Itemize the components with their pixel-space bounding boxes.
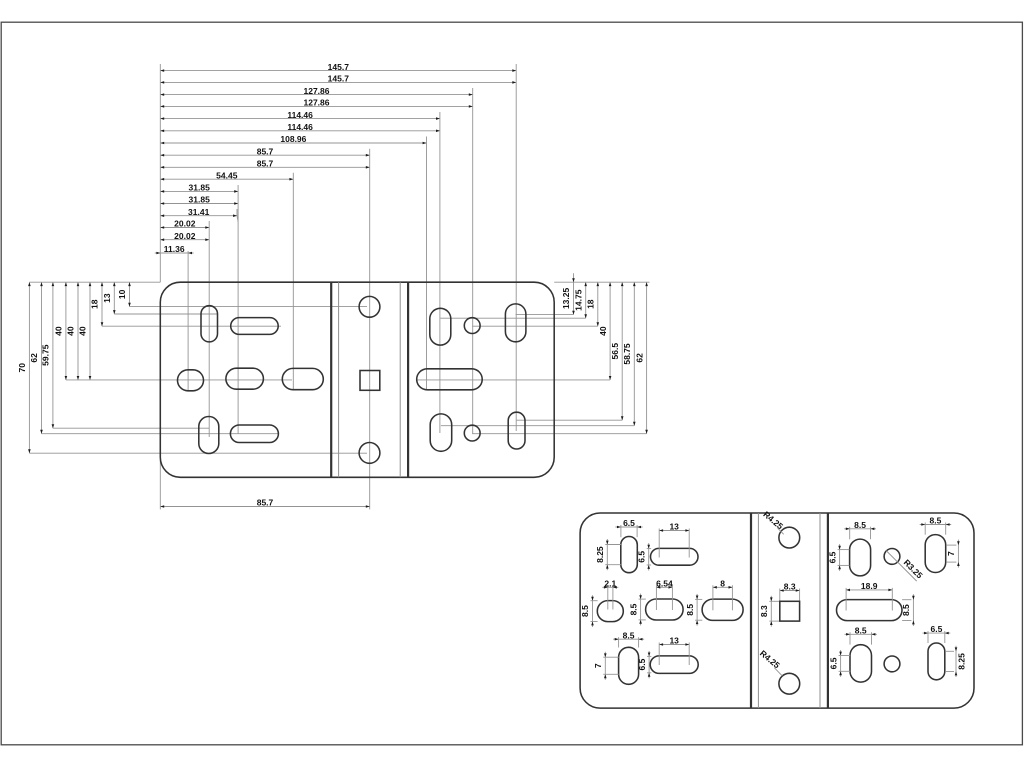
svg-text:8.5: 8.5: [685, 604, 695, 616]
svg-text:6.5: 6.5: [636, 551, 646, 563]
svg-text:70: 70: [17, 363, 27, 373]
svg-text:10: 10: [117, 289, 127, 299]
svg-text:85.7: 85.7: [257, 159, 274, 169]
svg-text:85.7: 85.7: [257, 146, 274, 156]
svg-text:6.5: 6.5: [930, 624, 942, 634]
svg-text:8.25: 8.25: [957, 653, 967, 670]
svg-text:145.7: 145.7: [328, 62, 350, 72]
svg-text:13: 13: [669, 636, 679, 646]
svg-text:58.75: 58.75: [622, 343, 632, 365]
svg-text:114.46: 114.46: [287, 110, 313, 120]
svg-text:13: 13: [669, 522, 679, 532]
svg-text:14.75: 14.75: [573, 289, 583, 311]
svg-text:6.54: 6.54: [656, 578, 673, 588]
svg-text:8.5: 8.5: [929, 516, 941, 526]
svg-text:31.85: 31.85: [189, 183, 211, 193]
svg-text:85.7: 85.7: [257, 498, 274, 508]
svg-text:8.5: 8.5: [628, 603, 638, 615]
svg-text:8.5: 8.5: [580, 605, 590, 617]
svg-text:11.36: 11.36: [164, 244, 185, 254]
svg-text:40: 40: [78, 326, 88, 336]
svg-text:8: 8: [720, 578, 725, 588]
svg-text:8.5: 8.5: [855, 625, 867, 635]
svg-text:59.75: 59.75: [41, 344, 51, 366]
svg-text:18: 18: [90, 299, 100, 309]
svg-text:54.45: 54.45: [216, 170, 238, 180]
svg-text:6.5: 6.5: [828, 657, 838, 669]
svg-text:8.3: 8.3: [784, 582, 796, 592]
svg-text:7: 7: [946, 551, 956, 556]
svg-text:8.5: 8.5: [623, 630, 635, 640]
svg-text:8.5: 8.5: [854, 520, 866, 530]
svg-text:56.5: 56.5: [610, 343, 620, 360]
svg-text:108.96: 108.96: [280, 134, 306, 144]
svg-text:127.86: 127.86: [304, 98, 330, 108]
svg-text:8.3: 8.3: [759, 605, 769, 617]
svg-text:40: 40: [598, 326, 608, 336]
svg-text:2.1: 2.1: [604, 578, 616, 588]
svg-text:20.02: 20.02: [174, 231, 196, 241]
svg-text:20.02: 20.02: [174, 219, 196, 229]
svg-text:13: 13: [102, 293, 112, 303]
svg-text:31.41: 31.41: [188, 207, 210, 217]
svg-text:31.85: 31.85: [189, 195, 211, 205]
svg-text:6.5: 6.5: [637, 658, 647, 670]
svg-text:6.5: 6.5: [827, 551, 837, 563]
svg-text:18.9: 18.9: [861, 581, 878, 591]
svg-text:114.46: 114.46: [287, 122, 313, 132]
svg-text:13.25: 13.25: [561, 287, 571, 309]
svg-text:8.25: 8.25: [595, 546, 605, 563]
svg-text:40: 40: [66, 326, 76, 336]
svg-text:62: 62: [634, 353, 644, 363]
svg-text:18: 18: [586, 299, 596, 309]
svg-text:127.86: 127.86: [304, 86, 330, 96]
svg-text:62: 62: [29, 353, 39, 363]
svg-text:8.5: 8.5: [901, 604, 911, 616]
svg-text:6.5: 6.5: [623, 518, 635, 528]
svg-text:40: 40: [54, 326, 64, 336]
svg-text:145.7: 145.7: [328, 74, 350, 84]
svg-text:7: 7: [593, 663, 603, 668]
